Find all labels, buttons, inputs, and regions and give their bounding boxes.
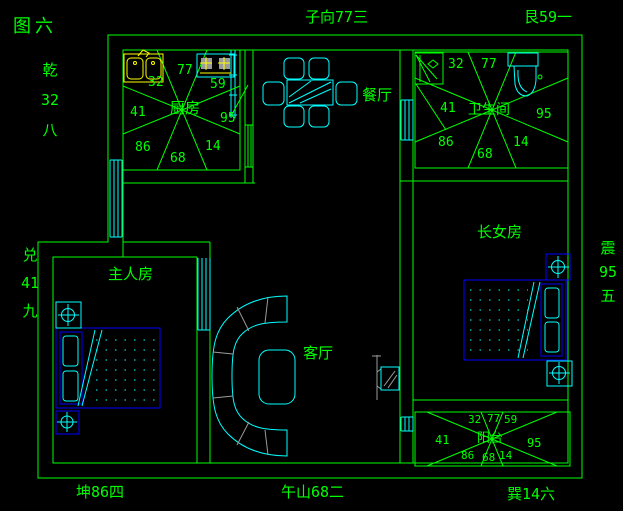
coffee-table[interactable] bbox=[259, 350, 295, 404]
star-num: 32 bbox=[148, 76, 164, 89]
compass-zhen-char2: 五 bbox=[600, 284, 615, 308]
compass-kun: 坤86四 bbox=[76, 485, 124, 500]
star-num: 95 bbox=[527, 437, 541, 449]
room-label-master: 主人房 bbox=[108, 267, 153, 282]
pillow bbox=[63, 371, 78, 401]
compass-qian-char2: 八 bbox=[42, 115, 57, 145]
star-num: 95 bbox=[536, 108, 552, 121]
star-num: 68 bbox=[170, 152, 186, 165]
star-num: 95 bbox=[220, 112, 236, 125]
sofa[interactable] bbox=[212, 296, 287, 456]
compass-qian-char: 乾 bbox=[42, 55, 57, 85]
room-label-bathroom: 卫生间 bbox=[468, 103, 510, 117]
shower-head-icon bbox=[428, 60, 438, 68]
dining-chair bbox=[284, 106, 304, 127]
dining-chair bbox=[309, 58, 329, 79]
room-label-living: 客厅 bbox=[303, 346, 333, 361]
tv[interactable] bbox=[372, 355, 399, 400]
room-label-dining: 餐厅 bbox=[362, 82, 379, 109]
star-num: 77 bbox=[481, 58, 497, 71]
star-num: 14 bbox=[499, 450, 512, 461]
room-label-kitchen: 厨房 bbox=[170, 101, 200, 116]
mattress-dots bbox=[96, 340, 156, 400]
star-num: 77 bbox=[487, 413, 500, 424]
daughter-nightstand-top[interactable] bbox=[546, 254, 570, 280]
room-label-daughter: 长女房 bbox=[477, 225, 522, 240]
daughter-bed[interactable] bbox=[464, 280, 566, 360]
star-num: 41 bbox=[130, 106, 146, 119]
dining-set[interactable] bbox=[263, 58, 357, 127]
kitchen-stove[interactable] bbox=[197, 54, 234, 77]
compass-qian: 乾 32 八 bbox=[35, 55, 65, 145]
pillow bbox=[545, 322, 559, 352]
star-num: 59 bbox=[504, 414, 517, 425]
dining-chair bbox=[284, 58, 304, 79]
dining-chair bbox=[309, 106, 329, 127]
compass-zhen-num: 95 bbox=[599, 260, 617, 284]
compass-xun: 巽14六 bbox=[507, 487, 555, 502]
star-num: 86 bbox=[135, 141, 151, 154]
master-nightstand-top[interactable] bbox=[56, 302, 81, 328]
lamp-icon bbox=[57, 412, 77, 432]
compass-zhen: 震 95 五 bbox=[594, 236, 622, 308]
cad-floorplan-canvas[interactable]: 图六 乾 32 八 兑 41 九 震 95 五 子向77三 艮59一 坤86四 … bbox=[0, 0, 623, 511]
window-center-wall bbox=[401, 100, 413, 140]
star-num: 14 bbox=[513, 136, 529, 149]
master-bed[interactable] bbox=[56, 328, 160, 408]
dining-chair bbox=[263, 82, 284, 105]
compass-dui-char2: 九 bbox=[22, 297, 37, 325]
window-kitchen-dining bbox=[245, 125, 253, 167]
dining-chair bbox=[336, 82, 357, 105]
lamp-icon bbox=[549, 362, 570, 384]
mattress-dots bbox=[470, 290, 528, 350]
star-num: 68 bbox=[482, 452, 495, 463]
compass-dui: 兑 41 九 bbox=[15, 241, 45, 325]
master-nightstand-bottom[interactable] bbox=[56, 411, 79, 434]
star-num: 68 bbox=[477, 148, 493, 161]
star-num: 41 bbox=[440, 102, 456, 115]
flush-icon bbox=[538, 75, 542, 79]
room-label-balcony: 阳台 bbox=[477, 432, 503, 445]
window-master-right bbox=[198, 258, 210, 330]
compass-dui-num: 41 bbox=[21, 269, 39, 297]
star-num: 77 bbox=[177, 64, 193, 77]
compass-dui-char: 兑 bbox=[22, 241, 37, 269]
compass-gen: 艮59一 bbox=[524, 10, 572, 25]
star-num: 86 bbox=[438, 136, 454, 149]
lamp-icon bbox=[548, 256, 569, 278]
sofa-seams bbox=[213, 297, 268, 455]
window-left-upper bbox=[110, 160, 122, 237]
floorplan-drawing bbox=[0, 0, 623, 511]
star-num: 32 bbox=[468, 414, 481, 425]
pillow bbox=[545, 288, 559, 318]
star-num: 32 bbox=[448, 58, 464, 71]
star-num: 14 bbox=[205, 140, 221, 153]
star-num: 41 bbox=[435, 434, 449, 446]
compass-zi: 子向77三 bbox=[305, 10, 368, 25]
window-balcony bbox=[401, 417, 413, 431]
star-num: 59 bbox=[210, 78, 226, 91]
pillow bbox=[63, 336, 78, 366]
lamp-icon bbox=[58, 304, 79, 326]
compass-zhen-char: 震 bbox=[600, 236, 615, 260]
star-num: 86 bbox=[461, 450, 474, 461]
figure-label: 图六 bbox=[13, 18, 57, 36]
compass-qian-num: 32 bbox=[41, 85, 59, 115]
compass-wu: 午山68二 bbox=[281, 485, 344, 500]
